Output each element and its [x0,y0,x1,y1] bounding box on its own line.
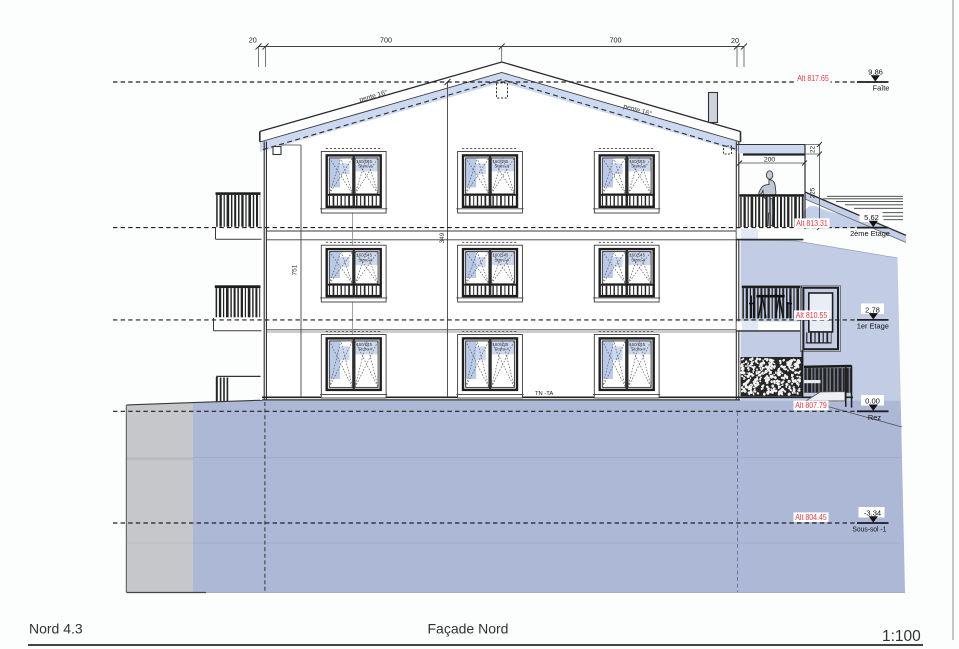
svg-text:200: 200 [764,156,776,163]
svg-text:Faîte: Faîte [873,84,890,93]
svg-text:Alt 804.45: Alt 804.45 [795,513,827,522]
svg-text:Alt 810.55: Alt 810.55 [796,311,828,320]
svg-text:Rez: Rez [868,413,881,422]
svg-text:-3.34: -3.34 [864,508,881,517]
svg-text:0.00: 0.00 [865,397,880,406]
svg-text:22: 22 [810,146,817,154]
svg-text:9.86: 9.86 [868,67,883,76]
svg-text:Sous-sol -1: Sous-sol -1 [852,525,886,534]
svg-text:2ème Etage: 2ème Etage [850,229,890,238]
svg-text:225: 225 [810,187,817,198]
svg-text:5.62: 5.62 [864,213,879,222]
svg-text:20: 20 [249,36,257,45]
svg-text:Nord 4.3: Nord 4.3 [29,621,83,637]
svg-text:Alt 817.65: Alt 817.65 [797,74,829,83]
svg-text:700: 700 [380,36,392,45]
svg-text:2.78: 2.78 [865,305,880,314]
svg-text:1:100: 1:100 [882,628,921,645]
svg-text:700: 700 [610,36,622,45]
svg-text:Alt 807.79: Alt 807.79 [795,401,827,410]
svg-text:Alt 813.31: Alt 813.31 [796,219,828,228]
svg-text:349: 349 [439,232,446,243]
svg-text:751: 751 [292,264,299,275]
svg-text:1er Etage: 1er Etage [857,322,889,331]
svg-text:Façade Nord: Façade Nord [428,621,509,637]
svg-text:TN -TA: TN -TA [535,391,553,397]
svg-text:20: 20 [731,36,739,45]
